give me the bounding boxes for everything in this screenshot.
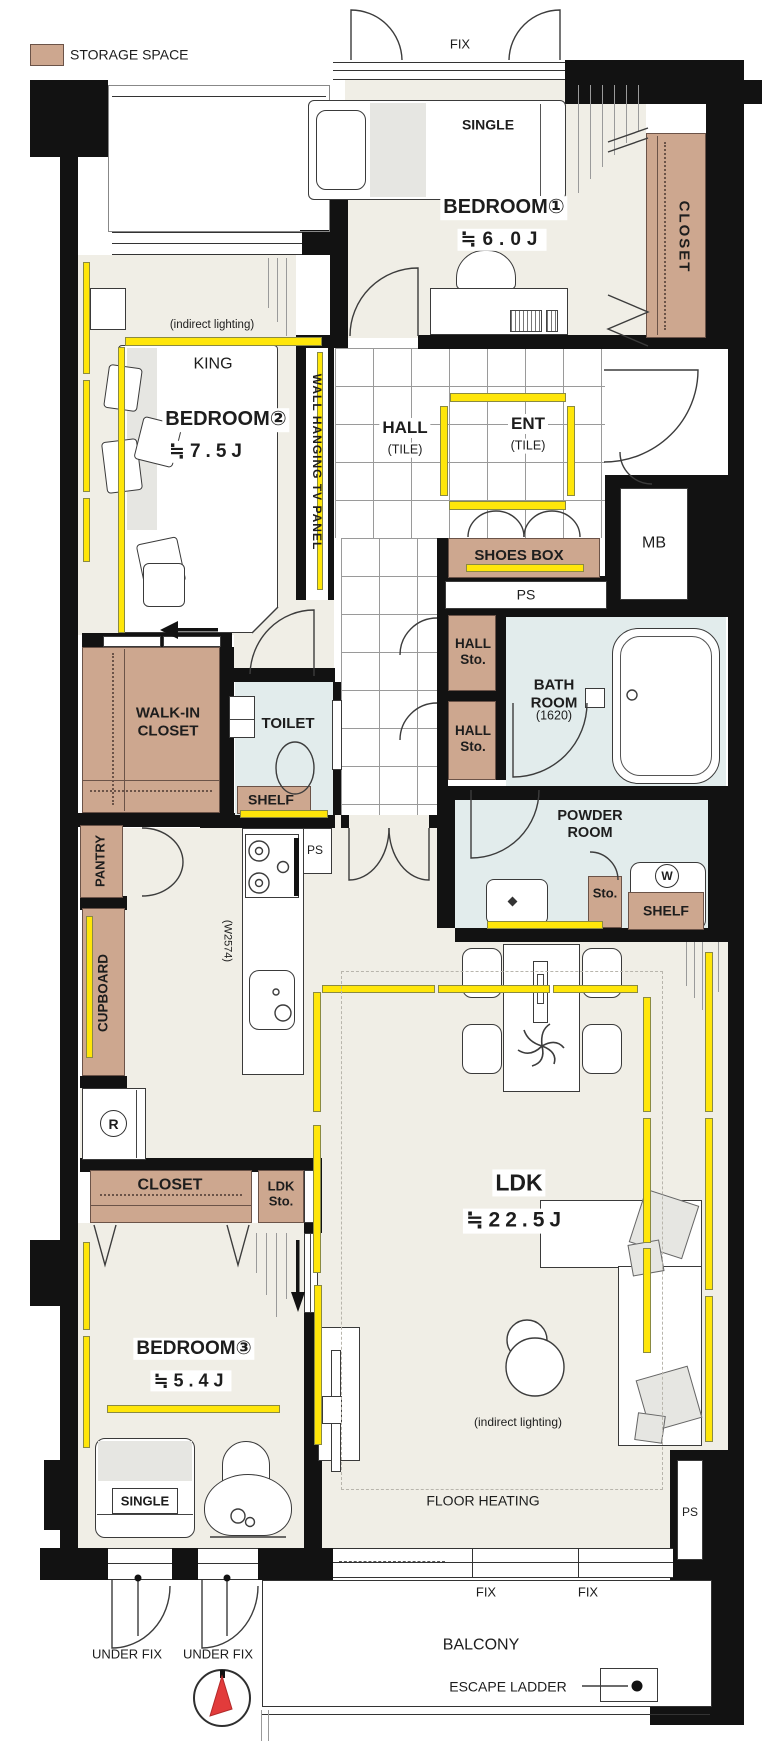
wall [437, 828, 455, 928]
closet1-divider [657, 136, 658, 335]
bed3-foot-line [97, 1514, 193, 1515]
under-fix-arc [202, 1580, 258, 1648]
hatch-line [268, 258, 269, 308]
gas-stove [245, 834, 299, 898]
lighting-strip [86, 916, 93, 1058]
bathtub-inner [620, 636, 712, 776]
upper-balcony-outline [108, 85, 330, 232]
wall [80, 1076, 127, 1088]
under-fix-right-label: UNDER FIX [183, 1646, 253, 1661]
powder-room-label: POWDER ROOM [557, 808, 622, 842]
desk1-monitor [510, 310, 542, 332]
bedroom2-label: BEDROOM② [162, 408, 289, 432]
wic-shelf-line [83, 780, 219, 781]
wall [728, 344, 744, 1456]
wall [455, 928, 728, 942]
escape-hatch-box [600, 1668, 658, 1702]
toilet-shelf-label: SHELF [248, 792, 294, 809]
closet1-hanger-line [664, 142, 666, 330]
hatch-line [256, 1233, 257, 1273]
wic-slider-panel [163, 636, 221, 647]
under-fix-window-left [108, 1548, 172, 1580]
wall [565, 60, 744, 80]
fix-window-dashes [339, 1561, 445, 1562]
king-label: KING [193, 356, 232, 375]
lighting-strip [83, 1336, 90, 1448]
hatch-line [614, 85, 615, 155]
ps-mid-label: PS [307, 843, 323, 857]
wall [650, 1705, 744, 1725]
legend-label: STORAGE SPACE [70, 47, 189, 64]
bedroom3-label: BEDROOM③ [133, 1338, 254, 1360]
wall-tv-panel-right [328, 348, 334, 600]
ps-bottom-label: PS [682, 1505, 698, 1519]
wall [333, 682, 341, 700]
lighting-strip [450, 393, 566, 402]
hatch-line [590, 85, 591, 179]
bathroom-label: BATH ROOM [531, 676, 578, 711]
escape-ladder-label: ESCAPE LADDER [449, 1679, 566, 1696]
ent-tile-label: (TILE) [508, 439, 549, 454]
powder-vanity [486, 879, 548, 925]
hatch-line [702, 942, 703, 1010]
lighting-strip [83, 1242, 90, 1330]
fix-window-bottom [333, 1548, 673, 1578]
lighting-strip [705, 1296, 713, 1442]
hall-tile-label: (TILE) [385, 443, 426, 458]
lighting-strip [705, 952, 713, 1112]
bed1-pillow [316, 110, 366, 190]
bedroom2-indirect-label: (indirect lighting) [170, 319, 254, 333]
hall-sto2-label: HALL Sto. [455, 723, 491, 755]
fix-window-top [333, 62, 565, 80]
lighting-strip [567, 406, 575, 496]
wall [330, 196, 348, 348]
hatch-line [266, 1233, 267, 1295]
washer-letter: W [661, 869, 672, 883]
balcony-side-line [268, 1710, 269, 1741]
hatch-line [276, 1233, 277, 1317]
nightstand-2 [90, 288, 126, 330]
under-fix-window-right [198, 1548, 258, 1580]
bedroom1-size: ≒6.0J [458, 229, 547, 251]
bath-counter [585, 688, 605, 708]
balcony-side-line [261, 1710, 262, 1741]
armchair-seat [204, 1474, 292, 1536]
hatch-line [578, 85, 579, 193]
stove-edge [294, 838, 299, 896]
bed3-single-label: SINGLE [121, 1493, 169, 1508]
wall [429, 815, 437, 828]
kitchen-width-label: (W2574) [222, 920, 233, 962]
legend-swatch [30, 44, 64, 66]
hatch-line [602, 85, 603, 167]
lighting-strip [449, 501, 566, 510]
fix-bottom-right-label: FIX [578, 1584, 598, 1599]
toilet-cistern [229, 696, 255, 738]
closet3-line [91, 1205, 251, 1206]
lighting-strip [487, 921, 603, 929]
floor-plan: R W [0, 0, 768, 1741]
entrance-door-arc [604, 370, 698, 462]
wall-tv-panel-left [296, 348, 306, 600]
wic-hanger-line [112, 653, 114, 805]
hatch-line [626, 85, 627, 143]
lighting-strip [125, 337, 322, 346]
floor-heating-label: FLOOR HEATING [426, 1493, 539, 1510]
ps-entrance-label: PS [517, 587, 536, 604]
wall [44, 1460, 60, 1530]
fridge-letter: R [108, 1116, 118, 1132]
wall [341, 815, 349, 828]
wall [445, 800, 455, 828]
bedroom2-size: ≒7.5J [166, 441, 250, 463]
compass-icon [193, 1669, 251, 1727]
lighting-strip [313, 992, 321, 1112]
bed1-mattress-shade [370, 103, 426, 197]
wall [333, 770, 341, 815]
lighting-strip [83, 262, 90, 374]
lighting-strip [313, 1125, 321, 1273]
hatch-line [638, 85, 639, 131]
bedroom3-size: ≒5.4J [150, 1370, 231, 1391]
wall [706, 104, 744, 344]
wall [708, 786, 728, 930]
bed1-hem-line [540, 104, 541, 196]
wic-slider-panel [103, 636, 161, 647]
fix-bottom-left-label: FIX [476, 1584, 496, 1599]
lighting-strip [314, 1285, 322, 1445]
lighting-strip [240, 810, 328, 818]
ent-label: ENT [508, 414, 548, 434]
ldk-label: LDK [492, 1169, 545, 1196]
pantry-label: PANTRY [94, 835, 107, 887]
kitchen-sink [249, 970, 295, 1030]
hatch-line [286, 1233, 287, 1299]
wall [300, 230, 337, 255]
hatch-line [686, 942, 687, 986]
hatch-line [694, 942, 695, 998]
toilet-slider-panel [332, 700, 342, 770]
powder-sto-label: Sto. [593, 885, 618, 900]
balcony-label: BALCONY [443, 1637, 519, 1656]
wall [30, 1240, 60, 1306]
ldk-sto-label: LDK Sto. [268, 1179, 295, 1210]
wall [225, 668, 335, 682]
fix-window-mullion [578, 1548, 579, 1578]
corridor-tile-floor [341, 538, 437, 815]
shoes-box-label: SHOES BOX [474, 547, 563, 565]
bedroom2-stool [143, 563, 185, 607]
lighting-strip [440, 406, 448, 496]
wall [30, 80, 108, 157]
hall-label: HALL [379, 418, 430, 438]
closet3-label: CLOSET [138, 1177, 203, 1196]
under-fix-left-label: UNDER FIX [92, 1646, 162, 1661]
ldk-size: ≒22.5J [463, 1209, 569, 1234]
lighting-strip [466, 564, 584, 572]
desk1-monitor2 [546, 310, 558, 332]
lighting-strip [83, 380, 90, 492]
wic-shelf-dotted [90, 790, 212, 792]
hatch-line [286, 258, 287, 336]
lighting-strip [118, 347, 125, 633]
cupboard-label: CUPBOARD [96, 954, 110, 1032]
mb-label: MB [642, 535, 666, 554]
wic-label: WALK-IN CLOSET [136, 704, 200, 739]
hall-sto1-label: HALL Sto. [455, 636, 491, 668]
bed1-single-label: SINGLE [462, 117, 514, 134]
hatch-line [718, 942, 719, 992]
counter-strip-floor [242, 1075, 304, 1158]
closet1-label: CLOSET [677, 201, 692, 274]
wall [448, 786, 728, 800]
powder-shelf-label: SHELF [643, 903, 689, 920]
lighting-strip [705, 1118, 713, 1290]
wall [708, 1450, 744, 1712]
bathroom-size: (1620) [536, 709, 572, 724]
wic-divider [124, 649, 125, 811]
fix-top-label: FIX [450, 36, 470, 51]
ldk-indirect-label: (indirect lighting) [474, 1415, 562, 1429]
hatch-line [277, 258, 278, 322]
casement-arc [351, 10, 402, 60]
tv-panel-label: WALL HANGING TV PANEL [311, 374, 323, 551]
lighting-strip [107, 1405, 280, 1413]
under-fix-arc [112, 1580, 170, 1648]
washer-mark: W [655, 864, 679, 888]
refrigerator-mark: R [100, 1110, 127, 1137]
toilet-label: TOILET [261, 715, 314, 733]
wall [565, 80, 762, 104]
tv-board-item [322, 1396, 342, 1424]
bed3-shade [98, 1441, 192, 1481]
lighting-strip [83, 498, 90, 562]
fridge-line [136, 1090, 137, 1158]
wall [60, 157, 78, 1556]
fix-window-mullion [472, 1548, 473, 1578]
wall [448, 691, 498, 701]
bedroom2-window [112, 232, 302, 255]
bedroom1-label: BEDROOM① [440, 196, 567, 220]
balcony-bottom-line [262, 1714, 710, 1715]
wall [40, 1548, 333, 1580]
casement-arc [509, 10, 560, 60]
